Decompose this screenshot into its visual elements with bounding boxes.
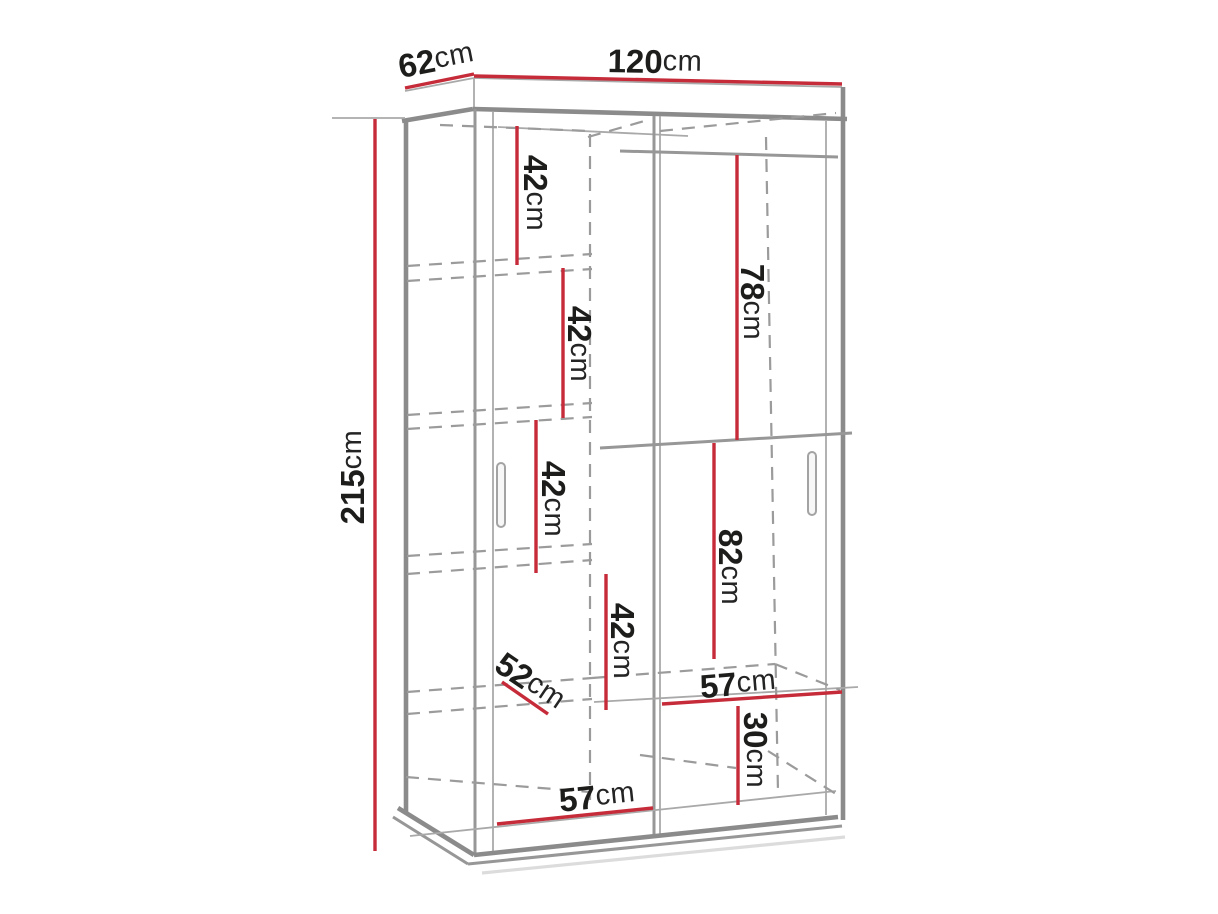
wardrobe-base [393,808,845,873]
wardrobe-dimension-diagram: 62cm 120cm 215cm 42cm 42cm 42cm 42cm 78c… [0,0,1218,914]
shelf-gap-2-label: 42cm [562,306,599,382]
left-panel-bottom [398,808,474,855]
shelf-gap-4-label: 42cm [605,603,642,679]
left-door-handle [497,463,505,527]
shelf-4-front [407,699,592,714]
shelf-gap-1-label: 42cm [518,155,555,231]
width-label: 120cm [607,42,702,81]
interior-solid-parts [410,151,858,836]
height-label: 215cm [334,430,371,525]
bottom-space-label: 30cm [738,712,775,788]
right-door-handle [808,452,816,515]
wardrobe-top-panel [402,78,847,136]
diagram-svg: 62cm 120cm 215cm 42cm 42cm 42cm 42cm 78c… [0,0,1218,914]
shelf-3-front [407,560,592,574]
right-shelf [600,433,852,448]
shelf-2-front [407,417,592,429]
shelf-1-back [407,254,592,266]
shelf-3-back [407,544,592,556]
hanging-space-label: 78cm [735,264,772,340]
plinth-left [393,817,468,864]
top-underside-left [402,109,473,121]
dimension-labels: 62cm 120cm 215cm 42cm 42cm 42cm 42cm 78c… [334,34,778,819]
shelf-gap-3-label: 42cm [536,461,573,537]
floor-shadow [482,837,845,873]
lower-right-shelf-depth [775,664,840,690]
lower-space-label: 82cm [713,529,750,605]
